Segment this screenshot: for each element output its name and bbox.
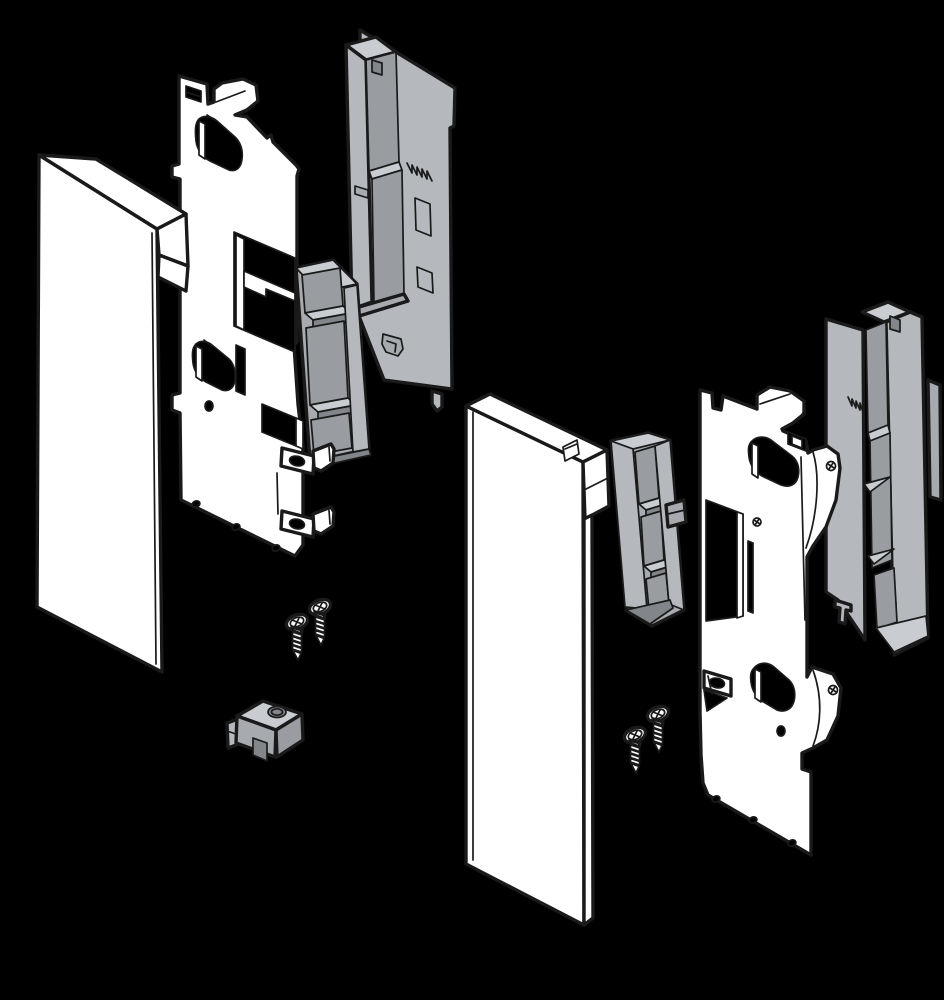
left-bracket-plate: Front fixing bracket plate (left)	[172, 76, 303, 556]
bottom-hook	[432, 391, 442, 411]
exploded-diagram: Adapter holder (left) Front fixing brack…	[0, 0, 944, 1000]
right-screws: Countersunk screws (right, 2x)	[622, 703, 671, 773]
mushroom-pin	[835, 600, 851, 624]
right-bracket-plate: Front fixing bracket plate (right)	[700, 387, 841, 855]
right-front-panel: Front panel (right)	[466, 394, 609, 925]
right-insert-frame: Insert frame (right)	[611, 433, 686, 626]
diagram-canvas: Adapter holder (left) Front fixing brack…	[0, 0, 944, 1000]
right-adapter-holder: Adapter holder (right)	[826, 302, 941, 655]
left-screws: Countersunk screws (left, 2x)	[284, 596, 333, 660]
left-front-panel: Front panel (left)	[37, 155, 188, 672]
clamp-nut: Clamp nut block	[227, 701, 303, 761]
